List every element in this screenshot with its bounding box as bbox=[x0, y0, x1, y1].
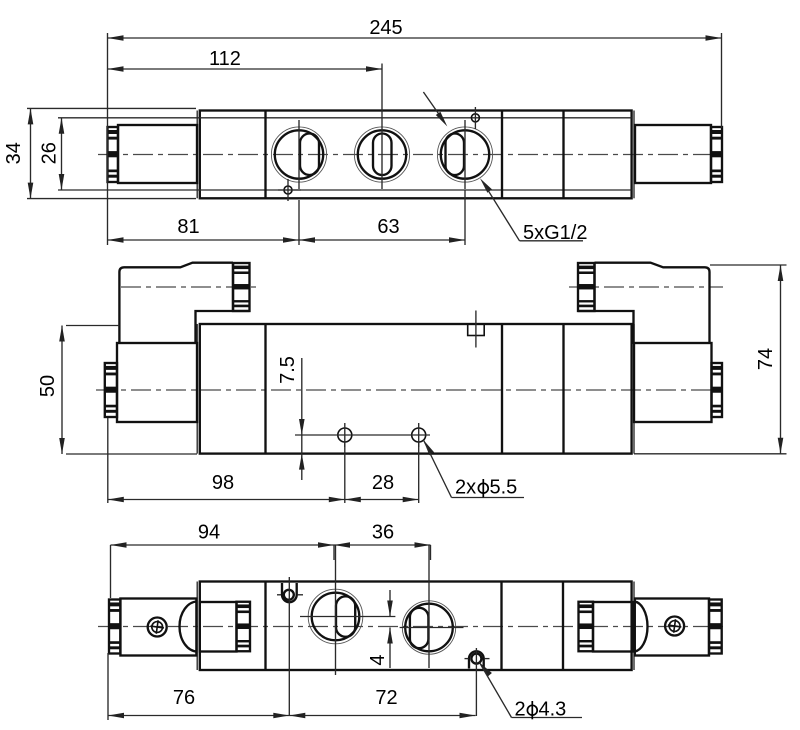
svg-text:63: 63 bbox=[377, 216, 399, 238]
svg-text:4: 4 bbox=[367, 654, 389, 665]
svg-text:74: 74 bbox=[755, 348, 777, 370]
svg-text:2: 2 bbox=[515, 699, 526, 721]
svg-text:81: 81 bbox=[177, 216, 199, 238]
svg-text:28: 28 bbox=[372, 472, 394, 494]
svg-text:98: 98 bbox=[212, 472, 234, 494]
svg-text:7.5: 7.5 bbox=[277, 356, 299, 384]
svg-text:36: 36 bbox=[372, 522, 394, 544]
svg-text:4.3: 4.3 bbox=[539, 699, 567, 721]
svg-text:5xG1/2: 5xG1/2 bbox=[523, 222, 587, 244]
svg-text:5.5: 5.5 bbox=[490, 477, 518, 499]
svg-text:245: 245 bbox=[369, 17, 402, 39]
svg-text:50: 50 bbox=[37, 375, 59, 397]
svg-text:94: 94 bbox=[198, 522, 220, 544]
svg-text:112: 112 bbox=[209, 48, 241, 70]
svg-text:2x: 2x bbox=[455, 477, 476, 499]
svg-text:26: 26 bbox=[39, 142, 61, 164]
svg-text:72: 72 bbox=[375, 687, 397, 709]
svg-text:34: 34 bbox=[3, 142, 25, 164]
svg-text:76: 76 bbox=[173, 687, 195, 709]
